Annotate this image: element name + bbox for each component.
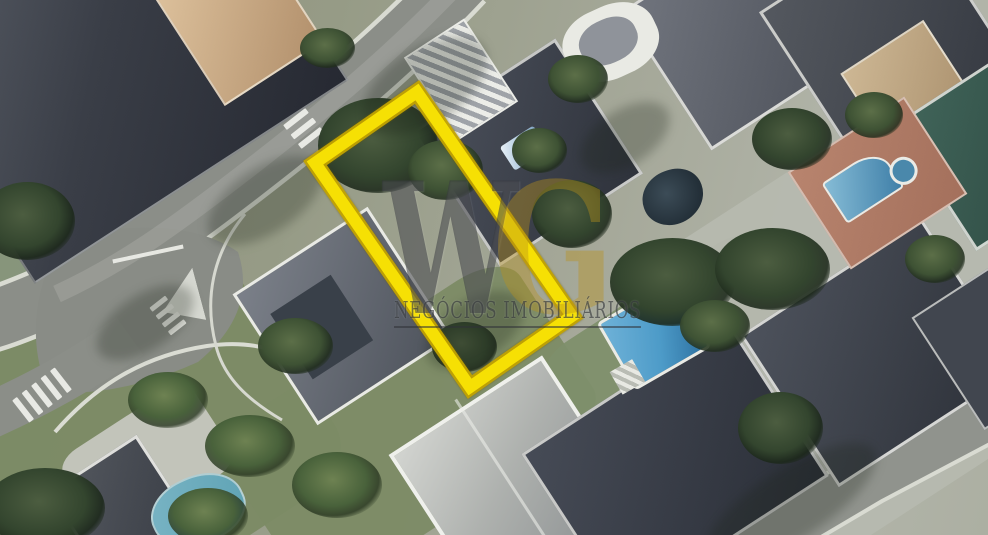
lot-boundary-layer [0, 0, 988, 535]
lot-boundary-outline [315, 92, 572, 387]
aerial-photo: W G NEGÓCIOS IMOBILIÁRIOS [0, 0, 988, 535]
